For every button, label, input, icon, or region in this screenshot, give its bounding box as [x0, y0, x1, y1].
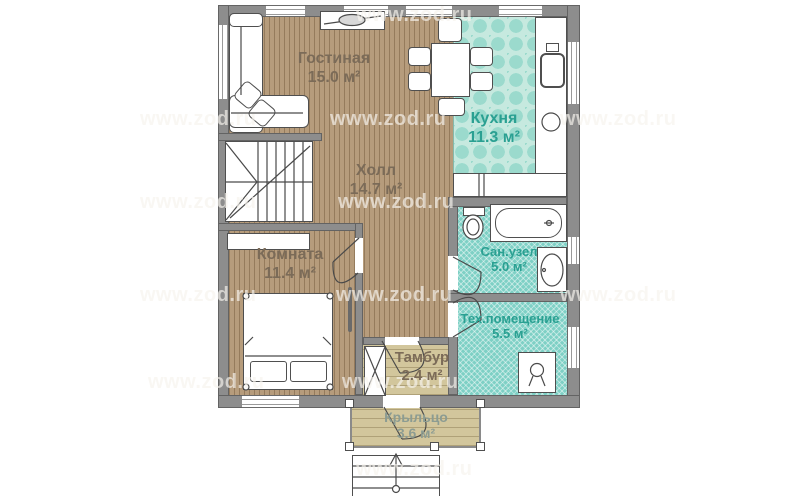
room-area: 5.0 м²	[429, 259, 589, 274]
bathtub-basin	[495, 208, 562, 238]
watermark: www.zod.ru	[356, 4, 472, 27]
window-kitchen-top	[499, 5, 542, 17]
room-area: 3.6 м²	[336, 425, 496, 441]
watermark: www.zod.ru	[148, 371, 264, 394]
room-name: Тамбур	[342, 349, 502, 367]
door-opening-vestibule	[385, 337, 419, 345]
watermark: www.zod.ru	[140, 284, 256, 307]
dining-table	[431, 43, 470, 97]
window-kitchen-right	[567, 42, 580, 104]
wall-bath-utility-divider	[448, 293, 567, 302]
room-name: Тех.помещение	[430, 311, 590, 326]
sofa-armrest	[229, 13, 263, 27]
wall-stairs-top	[218, 133, 322, 141]
room-area: 2.4 м²	[342, 367, 502, 385]
kitchen-counter-bottom	[453, 173, 567, 197]
room-name: Сан.узел	[429, 244, 589, 259]
room-name: Холл	[296, 162, 456, 181]
watermark: www.zod.ru	[336, 284, 452, 307]
room-label-kitchen: Кухня 11.3 м²	[414, 110, 574, 147]
porch-post	[476, 442, 485, 451]
room-label-utility: Тех.помещение 5.5 м²	[430, 311, 590, 341]
porch-post	[345, 442, 354, 451]
room-name: Кухня	[414, 110, 574, 129]
room-area: 5.5 м²	[430, 326, 590, 341]
window-bedroom-bottom	[242, 395, 299, 408]
room-label-hall: Холл 14.7 м²	[296, 162, 456, 199]
boiler	[518, 352, 556, 393]
kitchen-sink	[540, 53, 565, 88]
room-area: 14.7 м²	[296, 181, 456, 200]
room-label-porch: Крыльцо 3.6 м²	[336, 409, 496, 442]
wall-bedroom-top	[218, 223, 363, 231]
bed-pillow	[290, 361, 327, 382]
watermark: www.zod.ru	[356, 458, 472, 481]
toilet-tank	[463, 207, 485, 216]
watermark: www.zod.ru	[560, 284, 676, 307]
watermark: www.zod.ru	[140, 108, 256, 131]
window-living-top	[266, 5, 305, 17]
room-area: 11.4 м²	[210, 265, 370, 284]
dining-chair	[470, 72, 493, 91]
room-name: Крыльцо	[336, 409, 496, 425]
door-opening-entrance	[383, 395, 420, 408]
room-label-vestibule: Тамбур 2.4 м²	[342, 349, 502, 384]
room-label-living: Гостиная 15.0 м²	[254, 50, 414, 87]
porch-post	[476, 399, 485, 408]
window-living-left	[218, 25, 229, 99]
room-name: Гостиная	[254, 50, 414, 69]
room-area: 15.0 м²	[254, 69, 414, 88]
room-label-bedroom: Комната 11.4 м²	[210, 246, 370, 283]
porch-post	[345, 399, 354, 408]
dining-chair	[470, 47, 493, 66]
floor-plan: www.zod.ru www.zod.ru www.zod.ru www.zod…	[0, 0, 795, 496]
room-label-bathroom: Сан.узел 5.0 м²	[429, 244, 589, 274]
room-area: 11.3 м²	[414, 129, 574, 148]
watermark: www.zod.ru	[560, 108, 676, 131]
porch-post	[430, 442, 439, 451]
watermark: www.zod.ru	[140, 191, 256, 214]
room-name: Комната	[210, 246, 370, 265]
kitchen-faucet	[546, 43, 559, 52]
